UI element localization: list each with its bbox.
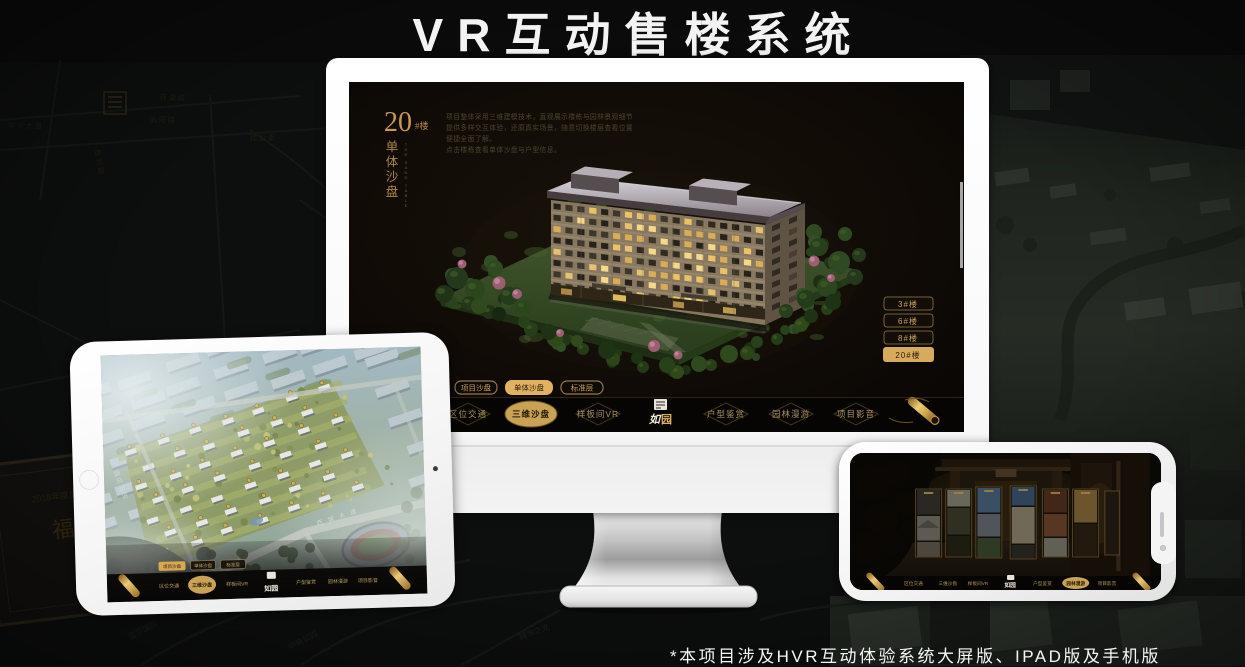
svg-text:E: E	[405, 152, 408, 157]
svg-text:园林漫游: 园林漫游	[1066, 580, 1085, 587]
svg-text:区位交通: 区位交通	[449, 409, 487, 419]
svg-text:E: E	[405, 203, 408, 208]
svg-text:单: 单	[386, 140, 399, 154]
svg-text:三维沙盘: 三维沙盘	[192, 581, 212, 589]
svg-text:园林漫游: 园林漫游	[328, 578, 348, 586]
svg-text:单体沙盘: 单体沙盘	[514, 383, 544, 393]
svg-text:体: 体	[386, 155, 399, 169]
svg-text:20: 20	[384, 107, 412, 138]
svg-text:样板间VR: 样板间VR	[968, 580, 989, 587]
svg-text:区位交通: 区位交通	[904, 580, 923, 587]
svg-text:三维沙盘: 三维沙盘	[512, 409, 550, 419]
svg-text:如园: 如园	[649, 413, 673, 426]
svg-text:园林漫游: 园林漫游	[772, 409, 810, 419]
svg-text:#楼: #楼	[415, 120, 429, 131]
svg-text:沙: 沙	[386, 170, 399, 184]
svg-text:便捷全面了解。: 便捷全面了解。	[446, 134, 496, 143]
svg-text:提供多样交互体验，还原真实场景，随意切换楼层查看位置: 提供多样交互体验，还原真实场景，随意切换楼层查看位置	[446, 123, 633, 132]
svg-text:样板间VR: 样板间VR	[226, 580, 249, 588]
svg-text:如园: 如园	[1004, 581, 1016, 589]
svg-text:项目影音: 项目影音	[837, 409, 875, 419]
svg-text:三维沙盘: 三维沙盘	[938, 580, 957, 587]
svg-text:标准层: 标准层	[571, 383, 594, 393]
svg-text:20#楼: 20#楼	[895, 350, 920, 360]
svg-text:8#楼: 8#楼	[898, 333, 918, 343]
svg-text:项目影音: 项目影音	[1098, 580, 1117, 587]
svg-text:区位交通: 区位交通	[159, 582, 179, 590]
svg-text:样板间VR: 样板间VR	[577, 409, 619, 419]
svg-text:盘: 盘	[386, 184, 399, 199]
svg-text:户型鉴赏: 户型鉴赏	[1033, 580, 1052, 587]
svg-text:如园: 如园	[264, 584, 278, 593]
svg-text:项目沙盘: 项目沙盘	[461, 383, 491, 393]
svg-text:项目影音: 项目影音	[358, 577, 378, 585]
svg-text:D: D	[405, 175, 408, 180]
svg-text:户型鉴赏: 户型鉴赏	[296, 579, 316, 587]
svg-text:项目整体采用三维建模技术，直观展示楼栋与园林景观细节: 项目整体采用三维建模技术，直观展示楼栋与园林景观细节	[446, 112, 633, 121]
svg-text:3#楼: 3#楼	[898, 299, 918, 309]
svg-text:点击楼栋查看单体沙盘与户型信息。: 点击楼栋查看单体沙盘与户型信息。	[446, 145, 561, 154]
svg-text:6#楼: 6#楼	[898, 316, 918, 326]
svg-text:户型鉴赏: 户型鉴赏	[707, 409, 745, 419]
